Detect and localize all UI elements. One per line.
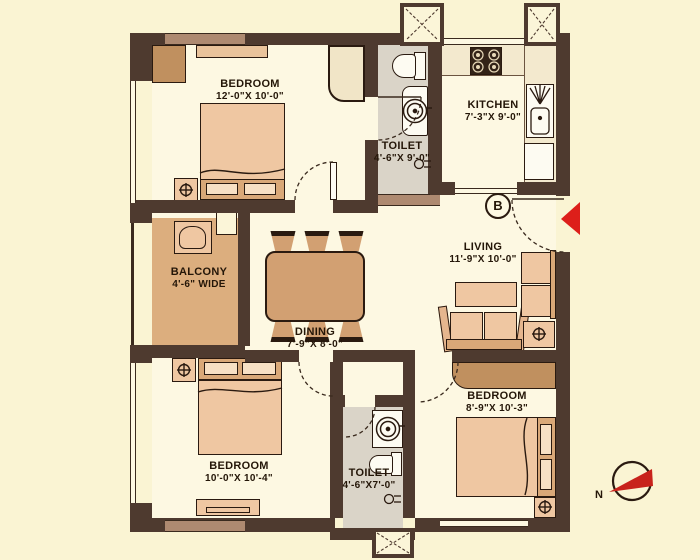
duct-cross-icon [406, 9, 438, 40]
room-dims: 7'-3"X 9'-0" [423, 112, 563, 124]
washbasin-icon [377, 418, 406, 441]
room-dims: 7'-9"X 8'-0" [245, 339, 385, 351]
room-dims: 4'-6"X7'-0" [299, 480, 439, 492]
bed-fold-line [200, 169, 285, 173]
room-name: LIVING [413, 241, 553, 254]
bed-fold-line [198, 388, 282, 392]
room-label-bedroom1: BEDROOM 12'-0"X 10'-0" [180, 78, 320, 103]
room-dims: 10'-0"X 10'-4" [169, 473, 309, 485]
north-label: N [595, 489, 603, 501]
lamp-icon [179, 183, 193, 197]
room-name: BALCONY [129, 266, 269, 279]
hob-burners-icon [473, 50, 499, 72]
bed-fold-line [524, 418, 527, 495]
drain-icon [385, 495, 402, 504]
room-label-dining: DINING 7'-9"X 8'-0" [245, 326, 385, 351]
lamp-icon [532, 327, 546, 341]
room-name: TOILET [332, 140, 472, 153]
entrance-arrow-icon [561, 202, 580, 235]
room-dims: 4'-6"X 9'-0" [332, 153, 472, 165]
room-label-toilet2: TOILET 4'-6"X7'-0" [299, 467, 439, 492]
duct-cross-icon [377, 533, 409, 553]
floor-plan-page: { "plan_title": "2BHK-style apartment fl… [0, 0, 700, 560]
room-name: KITCHEN [423, 99, 563, 112]
room-name: TOILET [299, 467, 439, 480]
duct-cross-icon [530, 9, 554, 40]
compass-icon [609, 462, 653, 500]
room-name: DINING [245, 326, 385, 339]
room-name: BEDROOM [169, 460, 309, 473]
room-name: BEDROOM [427, 390, 567, 403]
room-dims: 11'-9"X 10'-0" [413, 254, 553, 266]
door-arc-bedroom2 [299, 362, 333, 396]
room-label-kitchen: KITCHEN 7'-3"X 9'-0" [423, 99, 563, 124]
room-dims: 8'-9"X 10'-3" [427, 403, 567, 415]
room-label-living: LIVING 11'-9"X 10'-0" [413, 241, 553, 266]
room-dims: 12'-0"X 10'-0" [180, 91, 320, 103]
door-arc-toilet2 [345, 407, 375, 437]
door-arc-bedroom1 [295, 162, 333, 200]
lamp-icon [177, 363, 191, 377]
lamp-icon [538, 500, 552, 514]
block-b-marker: B [485, 193, 511, 219]
room-label-bedroom2: BEDROOM 10'-0"X 10'-4" [169, 460, 309, 485]
room-label-toilet1: TOILET 4'-6"X 9'-0" [332, 140, 472, 165]
room-name: BEDROOM [180, 78, 320, 91]
room-dims: 4'-6" WIDE [129, 279, 269, 291]
room-label-bedroom3: BEDROOM 8'-9"X 10'-3" [427, 390, 567, 415]
room-label-balcony: BALCONY 4'-6" WIDE [129, 266, 269, 291]
